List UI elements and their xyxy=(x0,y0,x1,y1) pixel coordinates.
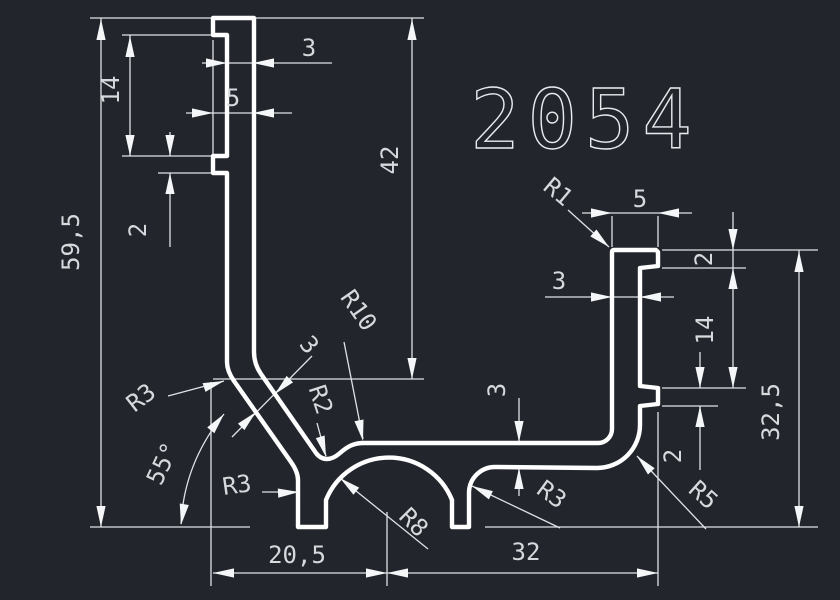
dim-bottom-width-right: 32 xyxy=(512,538,541,566)
dim-right-height: 32,5 xyxy=(757,383,785,441)
dim-fillet-r2: R2 xyxy=(303,381,339,417)
part-number-label: 2054 xyxy=(470,73,699,168)
dim-overall-height: 59,5 xyxy=(57,213,85,271)
dim-fillet-r3-upper: R3 xyxy=(121,378,161,418)
dim-diagonal-angle: 55° xyxy=(141,438,185,489)
cad-drawing-canvas: 2054 59,5 14 2 3 5 42 R1 5 2 3 14 2 32,5… xyxy=(0,0,840,600)
dim-fillet-r3-left-foot: R3 xyxy=(221,469,254,501)
dim-fillet-r5: R5 xyxy=(683,475,723,515)
dim-right-hook-height: 2 xyxy=(690,252,718,266)
dim-upper-depth: 42 xyxy=(376,146,404,175)
dim-arch-radius-r8: R8 xyxy=(394,502,434,542)
dim-left-tab-offset: 14 xyxy=(97,76,125,105)
dim-bottom-width-left: 20,5 xyxy=(268,541,326,569)
dim-fillet-r3-right-foot: R3 xyxy=(532,475,572,515)
dim-base-thickness: 3 xyxy=(483,383,511,397)
dim-radius-r1: R1 xyxy=(538,172,578,212)
dim-diagonal-thickness: 3 xyxy=(294,330,325,359)
dim-left-tab-height: 2 xyxy=(124,223,152,237)
dim-right-tab-offset: 14 xyxy=(691,316,719,345)
dim-right-wall-thickness: 3 xyxy=(552,267,566,295)
dim-top-wall-thickness: 3 xyxy=(302,34,316,62)
dim-right-hook-width: 5 xyxy=(633,185,647,213)
dim-right-tab-height: 2 xyxy=(659,449,687,463)
profile-drawing-2054: 2054 59,5 14 2 3 5 42 R1 5 2 3 14 2 32,5… xyxy=(0,0,840,600)
dimension-labels: 2054 59,5 14 2 3 5 42 R1 5 2 3 14 2 32,5… xyxy=(57,34,785,569)
dim-left-hook-width: 5 xyxy=(226,84,240,112)
dim-fillet-r10: R10 xyxy=(335,285,383,337)
